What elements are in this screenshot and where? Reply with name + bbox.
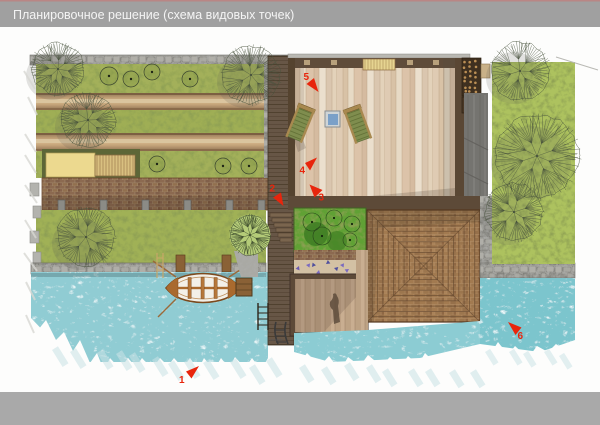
svg-text:3: 3: [319, 193, 325, 204]
svg-text:2: 2: [270, 184, 276, 195]
svg-text:1: 1: [179, 375, 185, 386]
svg-text:4: 4: [300, 166, 306, 177]
svg-text:Бассейн: Бассейн: [268, 337, 284, 342]
svg-text:Планировочное решение (схема в: Планировочное решение (схема видовых точ…: [13, 8, 294, 22]
svg-text:6: 6: [518, 331, 524, 342]
svg-text:5: 5: [304, 72, 310, 83]
